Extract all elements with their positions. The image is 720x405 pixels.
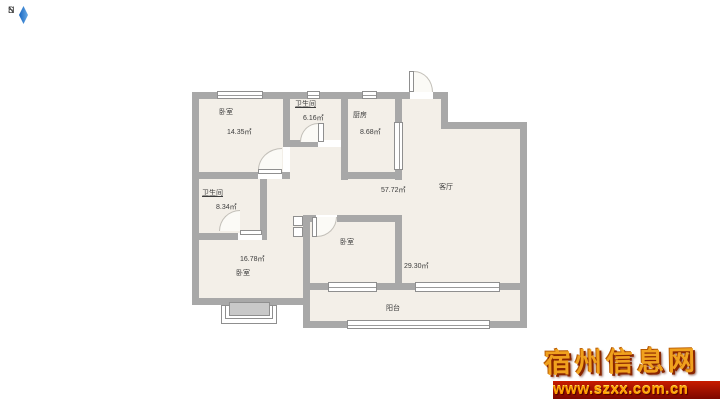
room-floor-bedroom-bottom-left bbox=[199, 240, 303, 298]
room-label-kitchen-area: 8.68㎡ bbox=[360, 129, 381, 137]
room-label-living-area: 57.72㎡ bbox=[381, 187, 406, 195]
watermark-url: www.szxx.com.cn bbox=[553, 381, 688, 399]
room-label-bathroom2-name: 卫生间 bbox=[202, 190, 223, 198]
door-jamb-bedroom2-b bbox=[293, 227, 303, 237]
wall-bed3-right bbox=[395, 215, 402, 290]
compass-needle-icon bbox=[19, 6, 28, 24]
room-floor-entry bbox=[402, 99, 441, 129]
room-label-kitchen-name: 厨房 bbox=[353, 112, 367, 120]
compass: N S bbox=[8, 5, 30, 49]
compass-south-label: S bbox=[8, 5, 14, 15]
room-label-bedroom2-area: 16.78㎡ bbox=[240, 256, 265, 264]
watermark-url-bar: www.szxx.com.cn bbox=[553, 381, 720, 399]
sliding-door-kitchen bbox=[394, 122, 403, 170]
room-label-bedroom3-area: 29.30㎡ bbox=[404, 263, 429, 271]
wall-left bbox=[192, 92, 199, 305]
floor-plan-canvas: N S bbox=[0, 0, 720, 405]
window-balcony-bottom bbox=[347, 320, 490, 329]
sliding-door-bedroom3-balcony bbox=[328, 282, 377, 292]
room-label-bedroom1-area: 14.35㎡ bbox=[227, 129, 252, 137]
wall-step bbox=[441, 122, 527, 129]
room-label-living-name: 客厅 bbox=[439, 184, 453, 192]
room-label-bedroom2-name: 卧室 bbox=[236, 270, 250, 278]
room-floor-living bbox=[402, 129, 520, 283]
bay-window-sill bbox=[229, 302, 270, 316]
door-leaf-bedroom3 bbox=[312, 217, 317, 237]
room-label-bathroom1-name: 卫生间 bbox=[295, 101, 316, 109]
room-floor-hall-2 bbox=[267, 179, 402, 215]
room-label-bedroom1-name: 卧室 bbox=[219, 109, 233, 117]
room-floor-hall-1 bbox=[290, 147, 341, 179]
door-gap-entry bbox=[410, 92, 433, 99]
window-bathroom1-top bbox=[307, 91, 320, 99]
wall-right bbox=[520, 122, 527, 328]
door-jamb-bedroom2-a bbox=[293, 216, 303, 226]
room-floor-balcony bbox=[310, 290, 520, 321]
room-label-bedroom3-name: 卧室 bbox=[340, 239, 354, 247]
window-bedroom1-top bbox=[217, 91, 263, 99]
door-leaf-bedroom1 bbox=[258, 169, 282, 174]
door-leaf-bathroom2 bbox=[240, 230, 262, 235]
window-kitchen-top bbox=[362, 91, 377, 99]
wall-bed3-left bbox=[303, 215, 310, 290]
room-label-balcony-name: 阳台 bbox=[386, 305, 400, 313]
wall-kitchen-bottom bbox=[348, 172, 402, 179]
sliding-door-living-balcony bbox=[415, 282, 500, 292]
door-arc-entry bbox=[414, 71, 433, 92]
watermark-site-name: 宿州信息网 bbox=[544, 347, 700, 380]
door-leaf-entry bbox=[409, 71, 414, 92]
door-leaf-bathroom1 bbox=[318, 123, 324, 142]
wall-bath1-kitchen bbox=[341, 99, 348, 180]
room-label-bathroom2-area: 8.34㎡ bbox=[216, 204, 237, 212]
room-label-bathroom1-area: 6.16㎡ bbox=[303, 115, 324, 123]
